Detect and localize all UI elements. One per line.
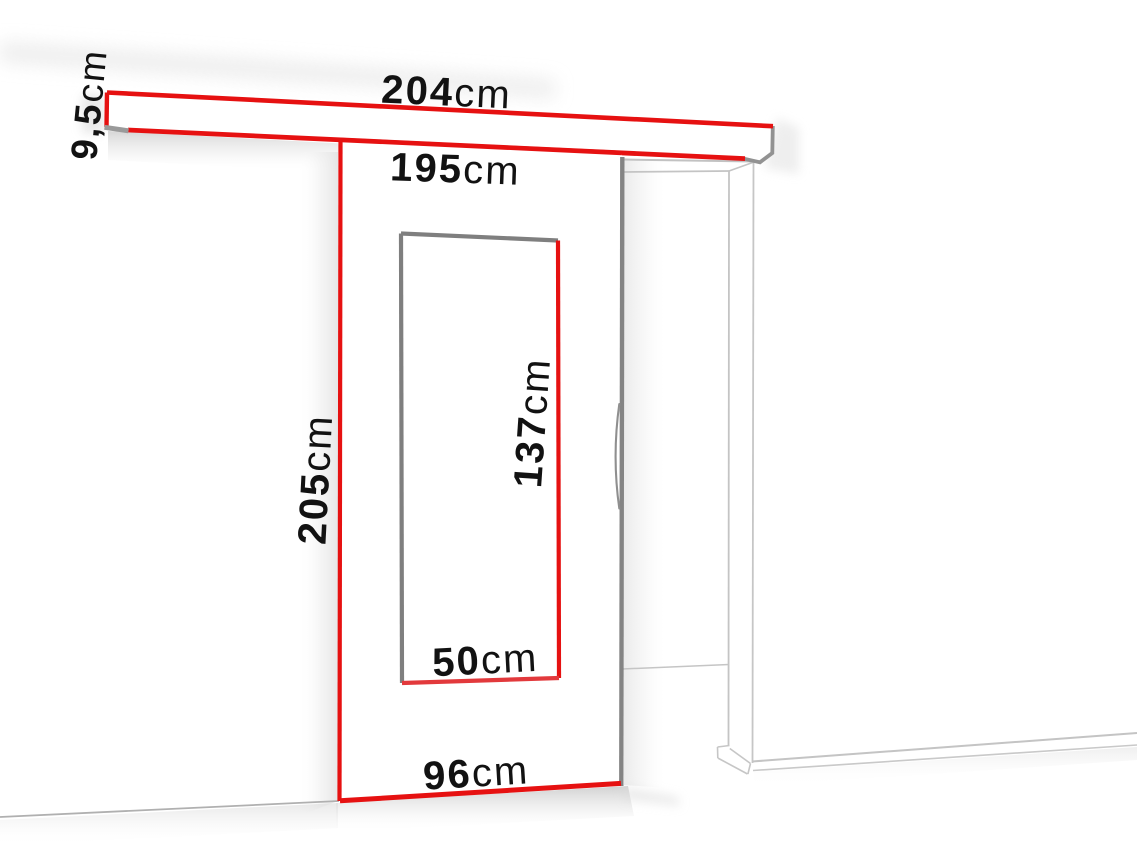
svg-text:96cm: 96cm bbox=[422, 748, 531, 798]
svg-text:205cm: 205cm bbox=[290, 413, 341, 546]
svg-text:137cm: 137cm bbox=[506, 356, 559, 489]
svg-text:50cm: 50cm bbox=[431, 636, 539, 685]
svg-text:204cm: 204cm bbox=[380, 68, 512, 118]
svg-text:195cm: 195cm bbox=[389, 145, 521, 194]
